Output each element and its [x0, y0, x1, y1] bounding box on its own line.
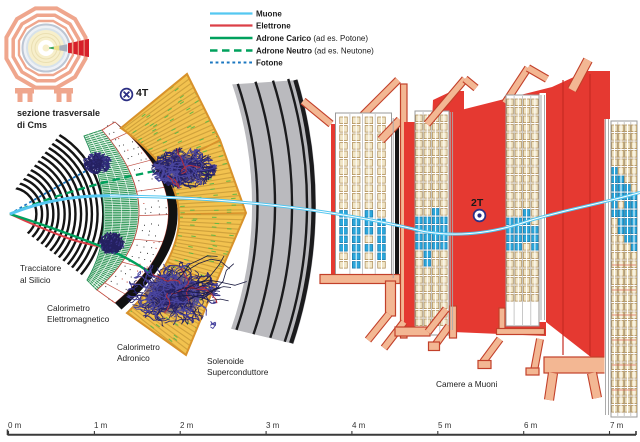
svg-text:sezione trasversale: sezione trasversale — [17, 108, 100, 118]
svg-text:Fotone: Fotone — [256, 58, 283, 67]
svg-text:Camere a Muoni: Camere a Muoni — [436, 379, 497, 389]
svg-text:7 m: 7 m — [610, 421, 624, 430]
svg-text:Muone: Muone — [256, 9, 282, 18]
svg-text:di Cms: di Cms — [17, 120, 47, 130]
svg-text:al Silicio: al Silicio — [20, 275, 51, 285]
svg-text:5 m: 5 m — [438, 421, 452, 430]
svg-text:2T: 2T — [471, 197, 484, 209]
svg-text:1 m: 1 m — [94, 421, 108, 430]
svg-text:Solenoide: Solenoide — [207, 356, 244, 366]
svg-text:Calorimetro: Calorimetro — [47, 303, 90, 313]
svg-text:Adrone Neutro (ad es. Neutone): Adrone Neutro (ad es. Neutone) — [256, 46, 374, 55]
svg-text:2 m: 2 m — [180, 421, 194, 430]
svg-text:6 m: 6 m — [524, 421, 538, 430]
svg-text:3 m: 3 m — [266, 421, 280, 430]
svg-text:Elettromagnetico: Elettromagnetico — [47, 314, 110, 324]
svg-text:4 m: 4 m — [352, 421, 366, 430]
svg-text:Elettrone: Elettrone — [256, 21, 291, 30]
svg-text:Calorimetro: Calorimetro — [117, 342, 160, 352]
svg-text:0 m: 0 m — [8, 421, 22, 430]
svg-text:Adronico: Adronico — [117, 353, 150, 363]
svg-text:4T: 4T — [136, 87, 149, 99]
svg-text:Superconduttore: Superconduttore — [207, 367, 269, 377]
svg-text:Tracciatore: Tracciatore — [20, 263, 62, 273]
svg-text:Adrone Carico (ad es. Potone): Adrone Carico (ad es. Potone) — [256, 34, 368, 43]
